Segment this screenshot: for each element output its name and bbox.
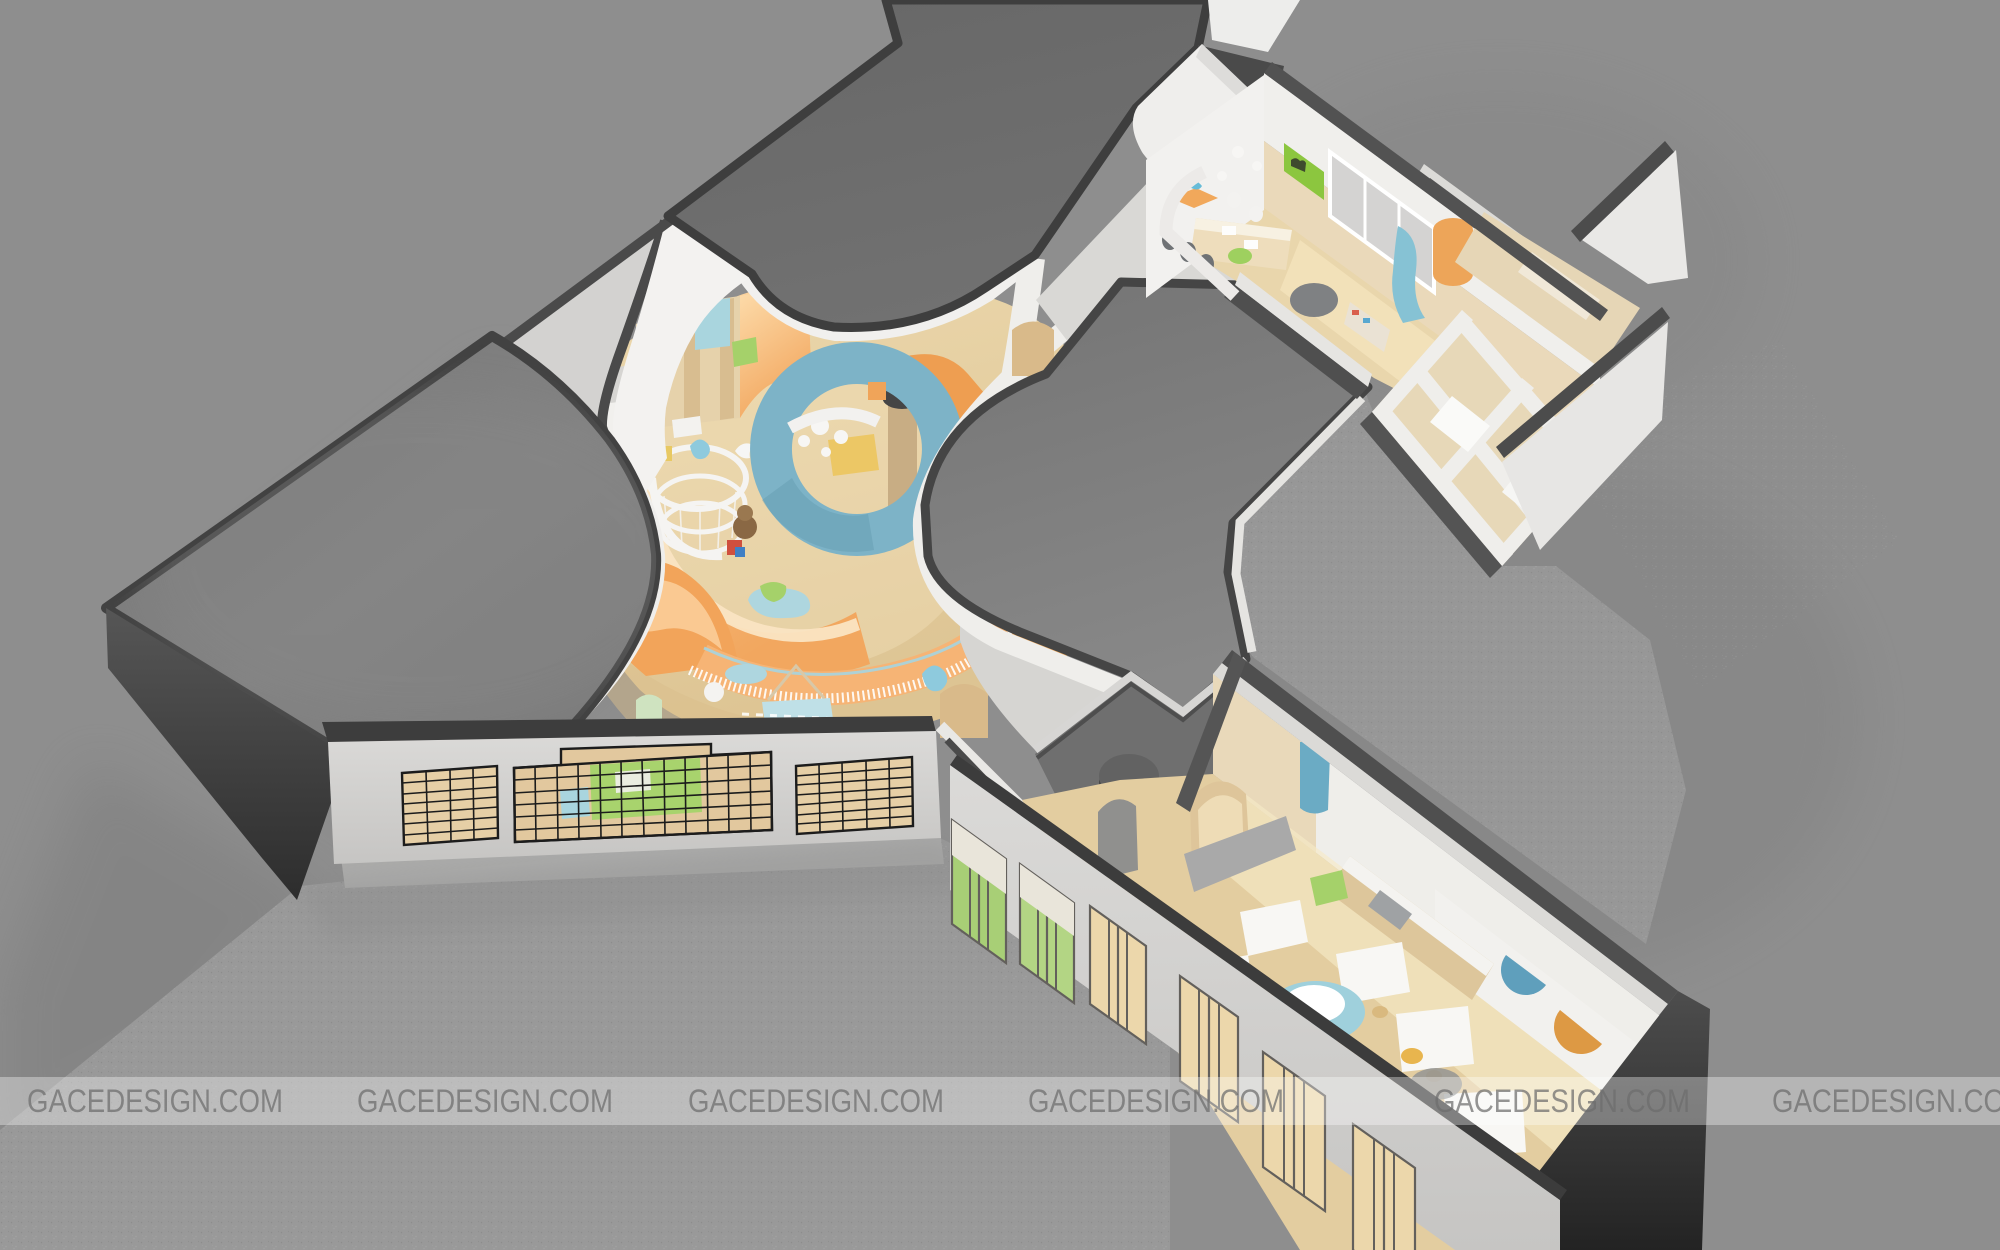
svg-text:GACEDESIGN.COM: GACEDESIGN.COM	[1028, 1083, 1284, 1119]
svg-text:GACEDESIGN.COM: GACEDESIGN.COM	[27, 1083, 283, 1119]
svg-text:GACEDESIGN.COM: GACEDESIGN.COM	[357, 1083, 613, 1119]
svg-text:GACEDESIGN.COM: GACEDESIGN.COM	[1434, 1083, 1690, 1119]
svg-text:GACEDESIGN.COM: GACEDESIGN.COM	[688, 1083, 944, 1119]
svg-text:GACEDESIGN.COM: GACEDESIGN.COM	[1772, 1083, 2000, 1119]
